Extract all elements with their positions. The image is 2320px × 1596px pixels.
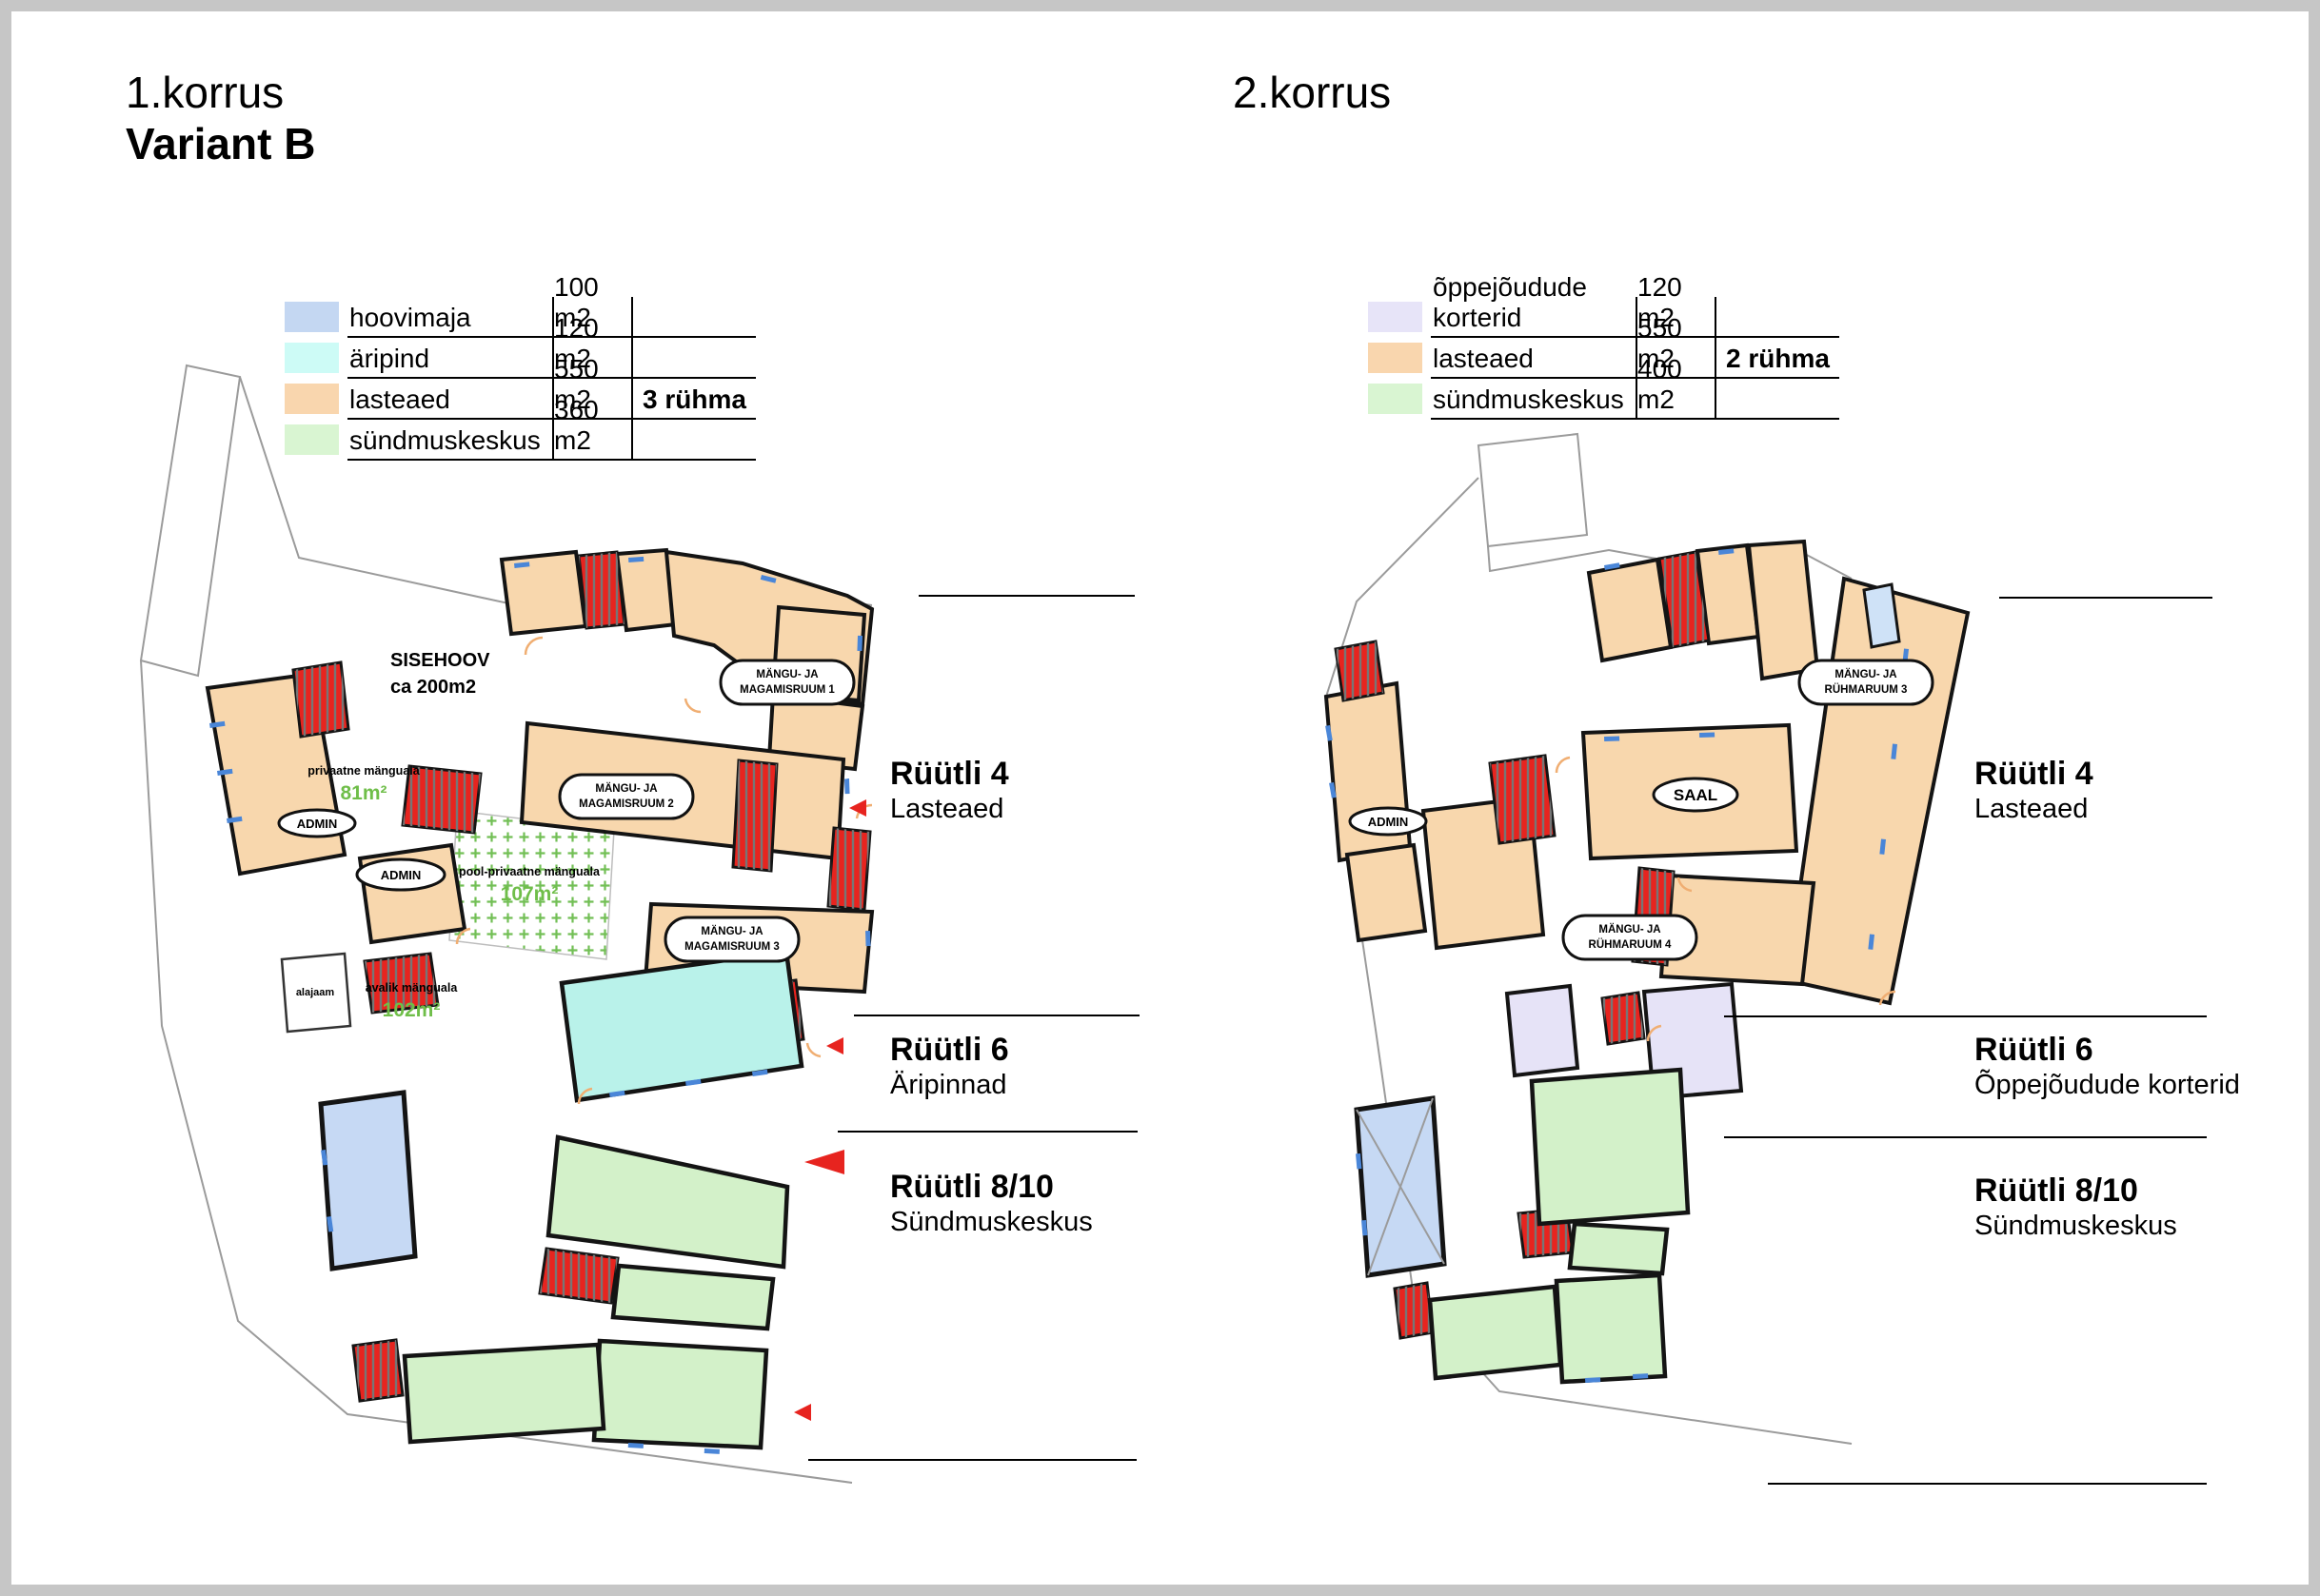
legend-swatch-hoovimaja	[285, 302, 339, 332]
svg-text:MÄNGU- JA: MÄNGU- JA	[756, 668, 818, 680]
svg-text:MÄNGU- JA: MÄNGU- JA	[595, 782, 657, 795]
street-label-ruutli810: Rüütli 8/10	[890, 1169, 1054, 1206]
legend-note	[633, 297, 756, 338]
svg-text:ADMIN: ADMIN	[297, 817, 338, 831]
street-use-ruutli4: Lasteaed	[1974, 794, 2088, 825]
svg-text:MAGAMISRUUM 3: MAGAMISRUUM 3	[684, 941, 780, 953]
label-semiprivate-playarea-size: 107m²	[501, 883, 559, 905]
building-korterid-1	[1507, 986, 1577, 1075]
street-label-ruutli6: Rüütli 6	[890, 1032, 1009, 1069]
building-sundmuskeskus-3	[594, 1341, 766, 1448]
label-private-playarea: privaatne mänguala	[307, 764, 420, 778]
divider-line	[854, 1015, 1140, 1016]
svg-text:SAAL: SAAL	[1674, 786, 1717, 804]
neighbor-building	[1478, 434, 1587, 546]
label-sisehoov: SISEHOOV	[390, 650, 490, 671]
building-hoovimaja-roof	[1357, 1098, 1444, 1275]
bubble-magamisruum-1: MÄNGU- JA MAGAMISRUUM 1	[721, 660, 854, 704]
building-aripind	[562, 952, 802, 1100]
legend-label: hoovimaja	[347, 297, 552, 338]
svg-text:MÄNGU- JA: MÄNGU- JA	[701, 925, 763, 937]
street-use-ruutli4: Lasteaed	[890, 794, 1003, 825]
street-label-ruutli4: Rüütli 4	[1974, 756, 2093, 793]
legend-row: õppejõudude korterid 120 m2	[1368, 297, 1839, 338]
entrance-arrow	[794, 1404, 811, 1421]
label-private-playarea-size: 81m²	[340, 782, 387, 804]
svg-text:MÄNGU- JA: MÄNGU- JA	[1598, 923, 1660, 936]
street-use-ruutli810: Sündmuskeskus	[1974, 1211, 2177, 1242]
floor2-title: 2.korrus	[1233, 67, 1391, 118]
building-hoovimaja	[321, 1093, 415, 1269]
floor1-subtitle: Variant B	[126, 118, 315, 169]
building-sundmuskeskus-1	[548, 1137, 787, 1267]
entrance-arrow	[826, 1037, 843, 1054]
legend-row: hoovimaja 100 m2	[285, 297, 756, 338]
divider-line	[838, 1131, 1138, 1133]
plan-sheet: 1.korrus Variant B 2.korrus hoovimaja 10…	[0, 0, 2320, 1596]
admin-oval: ADMIN	[1350, 808, 1426, 835]
bubble-ruhmaruum-4: MÄNGU- JA RÜHMARUUM 4	[1563, 916, 1696, 959]
legend-note	[1716, 297, 1839, 338]
street-label-ruutli6: Rüütli 6	[1974, 1032, 2093, 1069]
entrance-arrow-large	[804, 1150, 844, 1174]
legend-label: õppejõudude korterid	[1431, 297, 1636, 338]
divider-line	[808, 1459, 1137, 1461]
legend-swatch-korterid	[1368, 302, 1422, 332]
street-label-ruutli810: Rüütli 8/10	[1974, 1172, 2138, 1210]
street-use-ruutli810: Sündmuskeskus	[890, 1207, 1093, 1238]
divider-line	[1768, 1483, 2207, 1485]
neighbor-building	[141, 365, 240, 676]
building-top-room-a	[1589, 560, 1671, 660]
bubble-magamisruum-2: MÄNGU- JA MAGAMISRUUM 2	[560, 775, 693, 818]
svg-text:RÜHMARUUM 3: RÜHMARUUM 3	[1825, 683, 1908, 696]
divider-line	[1724, 1015, 2207, 1017]
admin-oval-1: ADMIN	[279, 810, 355, 837]
bubble-ruhmaruum-3: MÄNGU- JA RÜHMARUUM 3	[1799, 660, 1933, 704]
floorplan-2: ADMIN SAAL MÄNGU- JA RÜHMARUUM 3 MÄNGU- …	[1319, 364, 2109, 1563]
label-semiprivate-playarea: pool-privaatne mänguala	[459, 865, 601, 878]
building-sundmuskeskus-2	[1570, 1224, 1667, 1273]
svg-text:MÄNGU- JA: MÄNGU- JA	[1834, 668, 1896, 680]
street-use-ruutli6: Äripinnad	[890, 1070, 1007, 1101]
label-public-playarea-size: 102m²	[383, 999, 441, 1021]
street-use-ruutli6: Õppejõudude korterid	[1974, 1070, 2240, 1101]
label-public-playarea: avalik mänguala	[366, 981, 459, 995]
building-sundmuskeskus-4	[1430, 1287, 1560, 1378]
svg-text:RÜHMARUUM 4: RÜHMARUUM 4	[1589, 938, 1672, 951]
building-top-room-c	[1749, 542, 1817, 679]
street-label-ruutli4: Rüütli 4	[890, 756, 1009, 793]
building-annex-1	[1347, 845, 1425, 940]
label-alajaam: alajaam	[296, 987, 335, 998]
svg-text:ADMIN: ADMIN	[1368, 815, 1409, 829]
bubble-magamisruum-3: MÄNGU- JA MAGAMISRUUM 3	[665, 917, 799, 961]
saal-oval: SAAL	[1654, 778, 1737, 811]
svg-text:MAGAMISRUUM 2: MAGAMISRUUM 2	[579, 798, 674, 810]
divider-line	[1999, 597, 2212, 599]
divider-line	[1724, 1136, 2207, 1138]
building-sundmuskeskus-4	[405, 1345, 604, 1442]
building-sundmuskeskus-2	[613, 1266, 773, 1329]
building-sundmuskeskus-3	[1557, 1275, 1665, 1382]
floorplan-1: SISEHOOV ca 200m2 privaatne mänguala 81m…	[95, 360, 885, 1568]
label-sisehoov-area: ca 200m2	[390, 677, 476, 698]
admin-oval-2: ADMIN	[357, 859, 445, 890]
svg-text:MAGAMISRUUM 1: MAGAMISRUUM 1	[740, 684, 835, 696]
svg-text:ADMIN: ADMIN	[381, 868, 422, 882]
room-lightblue	[1864, 584, 1899, 647]
floor1-title: 1.korrus	[126, 67, 284, 118]
building-sundmuskeskus-1	[1532, 1070, 1688, 1224]
divider-line	[919, 595, 1135, 597]
